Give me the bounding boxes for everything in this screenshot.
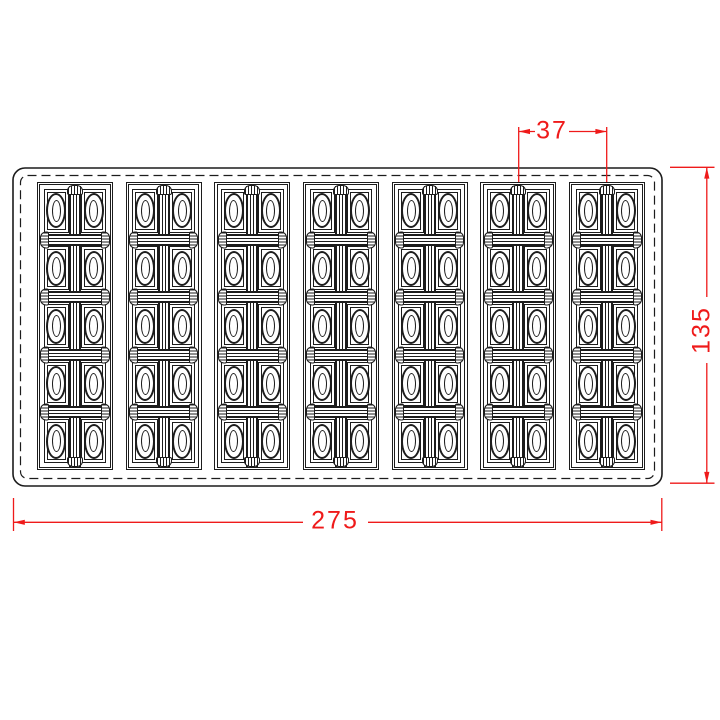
cavity-cell [81, 419, 106, 463]
center-rib-bottom-cap [67, 457, 83, 467]
cross-rib [486, 406, 550, 418]
cavity-oval-inner [355, 373, 364, 395]
cross-rib-right-cap [633, 346, 642, 363]
cross-rib-right-cap [101, 346, 110, 363]
cross-rib-left-cap [40, 289, 49, 306]
cross-rib [486, 234, 550, 246]
cross-rib-left-cap [395, 346, 404, 363]
cavity-cell [258, 419, 283, 463]
cavity-oval-inner [89, 200, 98, 222]
cross-rib-left-cap [218, 231, 227, 248]
technical-drawing-canvas: 37 275 135 [0, 0, 720, 720]
cavity-oval-inner [178, 373, 187, 395]
cavity-cell [613, 419, 638, 463]
cross-rib [132, 234, 196, 246]
cavity-oval [261, 251, 281, 286]
cavity-cell [310, 246, 335, 290]
center-rib [335, 186, 347, 467]
cross-rib-left-cap [572, 289, 581, 306]
center-rib-bottom-cap [422, 457, 438, 467]
cavity-cell [487, 246, 512, 290]
cross-rib-left-cap [484, 289, 493, 306]
cavity-cell [347, 189, 372, 233]
cavity-oval-inner [584, 430, 593, 452]
cross-rib-right-cap [455, 346, 464, 363]
cross-rib-left-cap [484, 346, 493, 363]
cavity-oval-inner [318, 257, 327, 279]
cavity-cell [487, 362, 512, 406]
cross-rib-right-cap [544, 346, 553, 363]
cross-rib-left-cap [306, 404, 315, 421]
cavity-oval-inner [532, 430, 541, 452]
center-rib-top-cap [422, 185, 438, 195]
cavity-oval [224, 309, 244, 344]
cavity-oval-inner [52, 430, 61, 452]
cross-rib [309, 349, 373, 361]
cavity-cell [487, 304, 512, 348]
cavity-cell [258, 246, 283, 290]
cavity-oval [135, 309, 155, 344]
cross-rib-left-cap [129, 346, 138, 363]
cavity-cell [221, 189, 246, 233]
cavity-oval-inner [584, 373, 593, 395]
cavity-oval-inner [229, 257, 238, 279]
cavity-cell [221, 362, 246, 406]
cavity-oval [84, 366, 104, 401]
cavity-oval [527, 309, 547, 344]
cavity-oval [350, 193, 370, 228]
cavity-oval-inner [89, 315, 98, 337]
mold-bar-column [37, 182, 113, 470]
cavity-oval-inner [89, 373, 98, 395]
cavity-cell [398, 246, 423, 290]
cavity-oval-inner [52, 257, 61, 279]
center-rib-top-cap [67, 185, 83, 195]
pitch-dimension-label: 37 [536, 119, 568, 144]
cavity-cell [169, 189, 194, 233]
cavity-cell [524, 189, 549, 233]
cavity-cell [576, 246, 601, 290]
cavity-oval-inner [495, 430, 504, 452]
cross-rib [220, 234, 284, 246]
cross-rib [575, 234, 639, 246]
cavity-oval [224, 424, 244, 459]
cross-rib-right-cap [189, 346, 198, 363]
cavity-oval-inner [318, 430, 327, 452]
cross-rib-left-cap [395, 231, 404, 248]
cross-rib-right-cap [278, 346, 287, 363]
cavity-oval [490, 193, 510, 228]
pitch-arrow-left [519, 129, 530, 134]
cross-rib-right-cap [455, 289, 464, 306]
cross-rib [43, 349, 107, 361]
cavity-oval [84, 309, 104, 344]
cross-rib-right-cap [544, 404, 553, 421]
cavity-oval-inner [318, 200, 327, 222]
cavity-oval-inner [229, 430, 238, 452]
cavity-oval-inner [355, 315, 364, 337]
cavity-oval [490, 424, 510, 459]
cavity-oval [135, 251, 155, 286]
cavity-oval-inner [444, 200, 453, 222]
cross-rib [132, 406, 196, 418]
cavity-oval [224, 251, 244, 286]
cross-rib [575, 291, 639, 303]
cavity-cell [524, 304, 549, 348]
cross-rib-right-cap [189, 404, 198, 421]
cavity-oval-inner [266, 257, 275, 279]
cavity-cell [258, 362, 283, 406]
cross-rib-right-cap [101, 289, 110, 306]
center-rib-top-cap [156, 185, 172, 195]
mold-bar-column [392, 182, 468, 470]
cavity-oval-inner [141, 373, 150, 395]
cavity-oval-inner [266, 200, 275, 222]
cavity-oval-inner [407, 315, 416, 337]
cavity-oval-inner [141, 430, 150, 452]
cavity-oval [401, 424, 421, 459]
cross-rib [398, 234, 462, 246]
center-rib-bottom-cap [510, 457, 526, 467]
cavity-cell [347, 246, 372, 290]
cross-rib [309, 291, 373, 303]
cavity-oval-inner [495, 200, 504, 222]
cavity-oval [172, 251, 192, 286]
cavity-oval [350, 251, 370, 286]
cross-rib-right-cap [101, 231, 110, 248]
cross-rib-left-cap [40, 346, 49, 363]
cavity-oval-inner [495, 257, 504, 279]
cavity-cell [44, 246, 69, 290]
cavity-cell [613, 246, 638, 290]
cross-rib-left-cap [218, 289, 227, 306]
cavity-cell [398, 304, 423, 348]
cavity-oval-inner [584, 257, 593, 279]
cross-rib-left-cap [395, 404, 404, 421]
cavity-oval [616, 366, 636, 401]
cavity-oval [261, 424, 281, 459]
cavity-oval [438, 251, 458, 286]
cavity-oval-inner [355, 200, 364, 222]
cavity-oval-inner [621, 257, 630, 279]
cross-rib-right-cap [367, 346, 376, 363]
cross-rib-left-cap [572, 346, 581, 363]
width-arrow-right [651, 520, 662, 525]
cross-rib-right-cap [101, 404, 110, 421]
cross-rib-left-cap [306, 346, 315, 363]
cavity-cell [435, 189, 460, 233]
cross-rib [132, 349, 196, 361]
cross-rib-left-cap [40, 404, 49, 421]
cavity-cell [524, 419, 549, 463]
cavity-oval-inner [532, 200, 541, 222]
center-rib [424, 186, 436, 467]
cavity-cell [44, 189, 69, 233]
cavity-cell [81, 189, 106, 233]
cavity-cell [132, 189, 157, 233]
mold-bar-column [569, 182, 645, 470]
cross-rib-left-cap [218, 404, 227, 421]
cavity-cell [398, 419, 423, 463]
cavity-oval [84, 251, 104, 286]
cavity-oval-inner [444, 430, 453, 452]
mold-bar-column [303, 182, 379, 470]
cavity-oval-inner [444, 257, 453, 279]
pitch-arrow-right [595, 129, 606, 134]
center-rib [69, 186, 81, 467]
cavity-cell [487, 189, 512, 233]
cavity-oval-inner [52, 315, 61, 337]
cavity-oval-inner [407, 430, 416, 452]
cross-rib-right-cap [189, 231, 198, 248]
cross-rib [398, 349, 462, 361]
cavity-cell [613, 304, 638, 348]
cavity-cell [44, 362, 69, 406]
cavity-cell [81, 304, 106, 348]
cross-rib [575, 349, 639, 361]
cavity-cell [487, 419, 512, 463]
cross-rib-left-cap [218, 346, 227, 363]
cavity-oval-inner [495, 315, 504, 337]
cavity-oval [490, 251, 510, 286]
center-rib [246, 186, 258, 467]
cavity-oval-inner [407, 257, 416, 279]
center-rib-top-cap [510, 185, 526, 195]
cross-rib-right-cap [455, 404, 464, 421]
cavity-oval [616, 193, 636, 228]
cavity-oval-inner [141, 257, 150, 279]
cavity-cell [221, 246, 246, 290]
cavity-cell [310, 362, 335, 406]
height-dimension-label: 135 [690, 306, 715, 354]
cavity-cell [347, 304, 372, 348]
cavity-cell [435, 362, 460, 406]
cavity-cell [132, 304, 157, 348]
cavity-cell [398, 189, 423, 233]
cavity-oval [438, 309, 458, 344]
center-rib-bottom-cap [244, 457, 260, 467]
cavity-oval [172, 309, 192, 344]
cavity-cell [310, 189, 335, 233]
cavity-cell [44, 304, 69, 348]
cavity-oval-inner [89, 430, 98, 452]
cross-rib-left-cap [572, 231, 581, 248]
cavity-oval-inner [621, 430, 630, 452]
cavity-oval [261, 366, 281, 401]
cavity-cell [132, 362, 157, 406]
cavity-oval [616, 309, 636, 344]
cavity-oval-inner [584, 200, 593, 222]
cavity-oval-inner [495, 373, 504, 395]
cross-rib [220, 349, 284, 361]
cavity-cell [524, 246, 549, 290]
cavity-cell [576, 419, 601, 463]
cavity-oval-inner [178, 200, 187, 222]
cross-rib-right-cap [633, 404, 642, 421]
cavity-cell [310, 304, 335, 348]
cross-rib-right-cap [455, 231, 464, 248]
cavity-oval-inner [584, 315, 593, 337]
cavity-cell [221, 304, 246, 348]
cavity-cell [258, 189, 283, 233]
cross-rib-left-cap [572, 404, 581, 421]
cavity-oval-inner [532, 315, 541, 337]
cavity-cell [435, 246, 460, 290]
cavity-oval [401, 251, 421, 286]
cavity-oval-inner [178, 430, 187, 452]
cavity-cell [347, 362, 372, 406]
cross-rib [398, 291, 462, 303]
cavity-oval-inner [444, 373, 453, 395]
cross-rib-right-cap [278, 289, 287, 306]
cross-rib [132, 291, 196, 303]
cross-rib [43, 291, 107, 303]
cross-rib [220, 291, 284, 303]
cavity-cell [44, 419, 69, 463]
width-arrow-left [14, 520, 25, 525]
cavity-oval [84, 424, 104, 459]
cavity-oval-inner [444, 315, 453, 337]
cross-rib-right-cap [544, 289, 553, 306]
center-rib [512, 186, 524, 467]
cavity-cell [169, 362, 194, 406]
cavity-oval [350, 309, 370, 344]
cross-rib-right-cap [544, 231, 553, 248]
cross-rib-left-cap [129, 231, 138, 248]
cavity-cell [310, 419, 335, 463]
cavity-cell [258, 304, 283, 348]
cross-rib-right-cap [189, 289, 198, 306]
cavity-cell [576, 362, 601, 406]
cavity-oval-inner [266, 430, 275, 452]
cross-rib [43, 406, 107, 418]
cavity-cell [169, 419, 194, 463]
cross-rib [486, 291, 550, 303]
cavity-oval-inner [229, 373, 238, 395]
cross-rib-left-cap [306, 231, 315, 248]
cavity-oval [172, 424, 192, 459]
cavity-cell [435, 304, 460, 348]
cavity-cell [169, 246, 194, 290]
cavity-oval-inner [621, 200, 630, 222]
center-rib-top-cap [599, 185, 615, 195]
cavity-oval [350, 366, 370, 401]
cavity-oval-inner [266, 315, 275, 337]
cross-rib [398, 406, 462, 418]
center-rib-top-cap [244, 185, 260, 195]
cross-rib-right-cap [278, 231, 287, 248]
cavity-oval-inner [141, 315, 150, 337]
cavity-oval [527, 366, 547, 401]
cross-rib-right-cap [367, 289, 376, 306]
mold-bar-column [214, 182, 290, 470]
mold-bar-column [126, 182, 202, 470]
center-rib [158, 186, 170, 467]
cavity-oval-inner [532, 373, 541, 395]
cross-rib-left-cap [484, 231, 493, 248]
cavity-oval [135, 424, 155, 459]
cavity-oval-inner [621, 373, 630, 395]
cavity-oval [616, 251, 636, 286]
cross-rib [309, 234, 373, 246]
center-rib-bottom-cap [599, 457, 615, 467]
cross-rib [43, 234, 107, 246]
cross-rib-left-cap [129, 289, 138, 306]
cavity-cell [398, 362, 423, 406]
cavity-oval [84, 193, 104, 228]
width-dimension-label: 275 [311, 509, 359, 534]
cavity-cell [347, 419, 372, 463]
cross-rib-right-cap [633, 231, 642, 248]
cross-rib-left-cap [306, 289, 315, 306]
center-rib-bottom-cap [333, 457, 349, 467]
cavity-oval [261, 309, 281, 344]
cavity-cell [132, 246, 157, 290]
cavity-oval-inner [407, 373, 416, 395]
cavity-oval-inner [355, 257, 364, 279]
center-rib [601, 186, 613, 467]
cross-rib-right-cap [367, 231, 376, 248]
cavity-oval-inner [621, 315, 630, 337]
cavity-oval-inner [52, 200, 61, 222]
cavity-oval-inner [178, 315, 187, 337]
cavity-cell [613, 362, 638, 406]
cavity-cell [524, 362, 549, 406]
cavity-oval [224, 366, 244, 401]
cavity-oval-inner [266, 373, 275, 395]
cavity-cell [132, 419, 157, 463]
cavity-oval [527, 251, 547, 286]
cavity-oval [401, 309, 421, 344]
cavity-oval-inner [355, 430, 364, 452]
cross-rib [309, 406, 373, 418]
cavity-oval-inner [318, 373, 327, 395]
cavity-cell [576, 189, 601, 233]
cavity-oval [490, 366, 510, 401]
cavity-oval-inner [89, 257, 98, 279]
mold-bar-column [480, 182, 556, 470]
height-arrow-bottom [704, 472, 709, 483]
cross-rib-left-cap [40, 231, 49, 248]
cavity-cell [221, 419, 246, 463]
cross-rib [486, 349, 550, 361]
cavity-oval [527, 424, 547, 459]
height-arrow-top [704, 167, 709, 178]
cavity-oval [224, 193, 244, 228]
cavity-oval-inner [52, 373, 61, 395]
cavity-oval-inner [141, 200, 150, 222]
cross-rib-right-cap [278, 404, 287, 421]
cavity-cell [576, 304, 601, 348]
cavity-oval [438, 424, 458, 459]
center-rib-bottom-cap [156, 457, 172, 467]
cross-rib-left-cap [129, 404, 138, 421]
cavity-cell [435, 419, 460, 463]
cross-rib [575, 406, 639, 418]
cavity-oval [527, 193, 547, 228]
cross-rib-left-cap [395, 289, 404, 306]
cavity-oval [616, 424, 636, 459]
cross-rib [220, 406, 284, 418]
cavity-cell [81, 362, 106, 406]
cavity-oval [350, 424, 370, 459]
cavity-oval-inner [532, 257, 541, 279]
cavity-oval-inner [229, 315, 238, 337]
cross-rib-right-cap [367, 404, 376, 421]
cavity-cell [169, 304, 194, 348]
cavity-oval-inner [318, 315, 327, 337]
cavity-oval-inner [229, 200, 238, 222]
